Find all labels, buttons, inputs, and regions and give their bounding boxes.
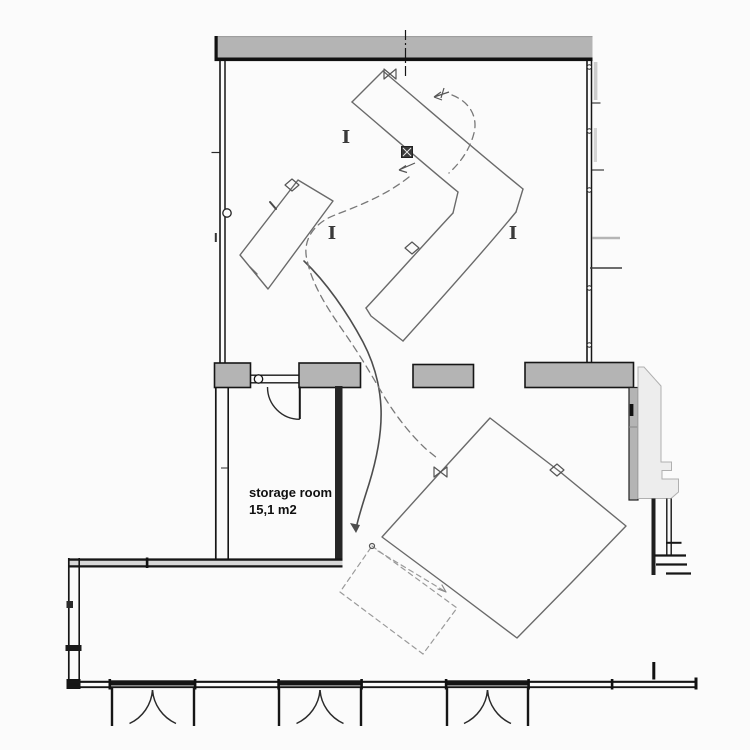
right-stair-structure <box>629 367 691 575</box>
right-wall-node-4 <box>587 286 591 290</box>
top-wall-inner-face <box>215 58 593 62</box>
stair-wall-dark-mark <box>630 404 634 416</box>
column-marker-1: I <box>342 127 350 148</box>
right-wall <box>587 61 622 364</box>
facade-upper-tick <box>652 662 655 680</box>
facade-door-header-1 <box>111 680 194 685</box>
storage-bottom-wall-joint <box>146 558 149 569</box>
facade-door-header-3 <box>447 680 528 685</box>
middle-wall-segment-a <box>215 363 251 388</box>
column-marker-2: I <box>328 223 336 244</box>
bottom-facade-wall <box>68 662 698 726</box>
dashed-rect-diagonal <box>378 551 446 592</box>
storage-room-name: storage room <box>249 485 332 500</box>
chevron-corner-ends <box>453 189 523 213</box>
facade-mullion-1 <box>109 679 112 690</box>
big-square-outline <box>382 418 626 638</box>
sketch-left-table <box>240 180 333 289</box>
left-wall-fixture-circle <box>223 209 231 217</box>
stair-stringer-thick <box>652 499 656 576</box>
facade-mullion-5 <box>445 679 448 690</box>
door2-left-swing-arc <box>297 690 321 724</box>
bowtie-marker-square <box>434 467 447 477</box>
storage-room: storage room 15,1 m2 <box>68 386 343 568</box>
facade-double-door-3 <box>447 688 528 726</box>
right-wall-node-5 <box>587 343 591 347</box>
middle-wall <box>215 363 634 388</box>
sketch-symbols: I I I <box>285 69 564 477</box>
middle-wall-segment-b <box>299 363 361 388</box>
right-wall-node-1 <box>587 65 591 69</box>
left-table-outline <box>240 180 333 289</box>
door1-right-swing-arc <box>153 690 177 724</box>
sketch-dashed-inner-rect <box>340 544 457 655</box>
rotation-arc-dashed <box>449 95 475 173</box>
facade-mullion-4 <box>360 679 363 690</box>
facade-double-door-1 <box>112 688 194 726</box>
facade-mullion-7 <box>611 679 614 690</box>
perimeter-left-wall-joint-2 <box>66 645 82 651</box>
middle-wall-segment-c <box>413 365 474 388</box>
facade-double-door-2 <box>279 688 361 726</box>
middle-wall-segment-d <box>525 363 634 388</box>
movement-path-arrowhead <box>350 523 360 533</box>
stair-landing-shape <box>638 367 679 499</box>
hand-arrow-mid <box>399 163 415 173</box>
storage-door-fixture-circle <box>254 375 262 383</box>
right-wall-node-3 <box>587 188 591 192</box>
floor-plan-drawing: storage room 15,1 m2 <box>0 0 750 750</box>
storage-door-swing-arc <box>268 387 300 419</box>
top-wall-band <box>215 30 598 162</box>
hand-arrow-top <box>434 88 449 100</box>
right-jamb-shade-2 <box>594 128 597 162</box>
facade-door-header-2 <box>280 680 361 685</box>
storage-right-wall <box>335 386 343 562</box>
column-marker-3: I <box>509 223 517 244</box>
left-wall <box>212 61 232 364</box>
facade-mullion-3 <box>277 679 280 690</box>
sketch-chevron-table <box>352 71 523 341</box>
facade-mullion-2 <box>194 679 197 690</box>
sketch-big-square-table <box>382 418 626 638</box>
chevron-inner-edge-b <box>366 213 453 308</box>
door2-right-swing-arc <box>320 690 344 724</box>
left-table-edge-mark <box>270 202 276 209</box>
door1-left-swing-arc <box>130 690 153 724</box>
lower-left-perimeter-wall <box>66 558 82 689</box>
right-jamb-shade-1 <box>594 62 598 100</box>
chevron-outer-edge-b <box>403 212 516 341</box>
left-table-divider-tick <box>250 267 257 274</box>
chevron-left-end <box>352 71 383 102</box>
facade-mullion-6 <box>527 679 530 690</box>
top-wall-poche <box>215 36 593 58</box>
right-wall-node-2 <box>587 129 591 133</box>
door3-right-swing-arc <box>488 690 512 724</box>
facade-end-cap <box>695 678 698 690</box>
chevron-bottom-end <box>366 308 403 341</box>
storage-bottom-wall-core <box>68 560 343 566</box>
top-wall-left-end <box>215 36 218 61</box>
dashed-rect-outline <box>340 546 457 654</box>
movement-path-dashed <box>306 177 437 458</box>
perimeter-left-wall-joint-1 <box>67 601 74 608</box>
storage-room-area: 15,1 m2 <box>249 502 297 517</box>
door3-left-swing-arc <box>464 690 488 724</box>
sketch-paths <box>304 95 475 533</box>
scanned-floor-plan: storage room 15,1 m2 <box>0 0 750 750</box>
